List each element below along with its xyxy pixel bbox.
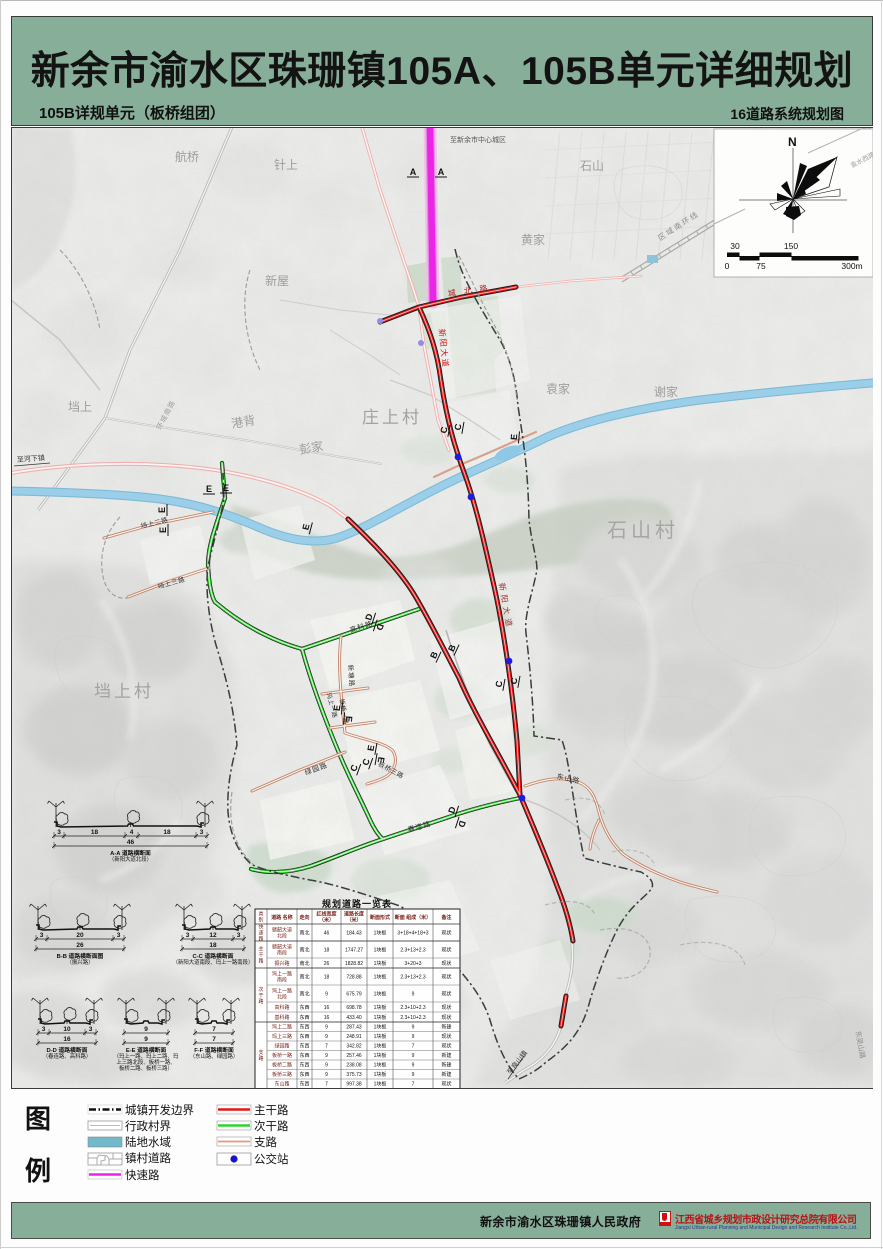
svg-text:342.82: 342.82 (346, 1044, 362, 1050)
svg-text:航桥: 航桥 (175, 149, 199, 164)
svg-text:板桥三路: 板桥三路 (272, 1071, 292, 1078)
svg-text:现状: 现状 (441, 929, 451, 936)
svg-text:镇村道路: 镇村道路 (125, 1151, 171, 1165)
svg-text:快: 快 (258, 923, 263, 930)
svg-text:石山村: 石山村 (607, 519, 679, 542)
svg-text:1块板: 1块板 (374, 1081, 387, 1088)
svg-text:玛上一路: 玛上一路 (272, 970, 292, 977)
svg-text:9: 9 (412, 1034, 415, 1040)
svg-text:1块板: 1块板 (374, 1071, 387, 1078)
svg-text:路: 路 (258, 998, 263, 1005)
svg-text:7: 7 (325, 1082, 328, 1088)
svg-text:46: 46 (324, 930, 330, 936)
svg-text:玛上一路: 玛上一路 (272, 987, 292, 994)
svg-text:赣韶大道: 赣韶大道 (272, 926, 292, 933)
svg-text:道路长度: 道路长度 (344, 911, 365, 918)
svg-text:7: 7 (412, 1044, 415, 1050)
svg-text:9: 9 (325, 991, 328, 997)
svg-text:次: 次 (258, 986, 263, 993)
svg-text:路: 路 (258, 957, 263, 964)
svg-text:1747.27: 1747.27 (345, 947, 363, 953)
svg-text:现状: 现状 (441, 1043, 451, 1050)
svg-text:东山路: 东山路 (274, 1081, 289, 1088)
svg-text:高科路: 高科路 (274, 1004, 289, 1011)
svg-text:9: 9 (325, 1025, 328, 1031)
svg-text:南北: 南北 (299, 946, 309, 953)
svg-text:（春连路、高科路）: （春连路、高科路） (43, 1052, 92, 1060)
svg-text:南北: 南北 (299, 929, 309, 936)
svg-text:东西: 东西 (299, 1014, 309, 1021)
svg-text:F-F 道路横断面: F-F 道路横断面 (194, 1046, 234, 1054)
svg-text:7: 7 (212, 1036, 216, 1043)
svg-text:16: 16 (63, 1036, 71, 1043)
svg-text:现状: 现状 (441, 1033, 451, 1040)
svg-text:公交站: 公交站 (254, 1152, 289, 1166)
svg-text:陆地水域: 陆地水域 (125, 1135, 171, 1149)
svg-text:别: 别 (258, 917, 263, 924)
svg-text:南北: 南北 (299, 973, 309, 980)
svg-text:1块板: 1块板 (374, 1024, 387, 1031)
svg-text:3: 3 (57, 829, 61, 836)
svg-text:现状: 现状 (441, 1014, 451, 1021)
svg-text:C-C 道路横断面: C-C 道路横断面 (193, 952, 234, 960)
svg-text:433.40: 433.40 (346, 1015, 362, 1021)
svg-text:南段: 南段 (277, 976, 287, 983)
svg-text:2.3+13+2.3: 2.3+13+2.3 (400, 947, 426, 953)
svg-text:1块板: 1块板 (374, 1062, 387, 1069)
svg-text:板桥二路、板桥三路）: 板桥二路、板桥三路） (119, 1064, 173, 1072)
svg-text:9: 9 (412, 1063, 415, 1069)
svg-text:谢家: 谢家 (654, 384, 678, 399)
svg-text:3: 3 (89, 1026, 93, 1033)
svg-text:东西: 东西 (299, 1071, 309, 1078)
svg-text:东西: 东西 (299, 1043, 309, 1050)
svg-text:快速路: 快速路 (125, 1168, 160, 1182)
svg-text:A: A (438, 167, 445, 177)
svg-text:玛上三路: 玛上三路 (272, 1033, 292, 1040)
svg-text:3: 3 (42, 1026, 46, 1033)
svg-text:板桥一路: 板桥一路 (272, 1052, 292, 1059)
svg-text:20: 20 (76, 932, 84, 939)
svg-text:北段: 北段 (277, 932, 287, 939)
svg-text:次干路: 次干路 (254, 1119, 289, 1133)
svg-text:新屋: 新屋 (265, 273, 289, 288)
svg-text:E: E (158, 527, 168, 533)
svg-text:18: 18 (91, 829, 99, 836)
svg-text:玛上二路: 玛上二路 (272, 1024, 292, 1031)
svg-text:675.79: 675.79 (346, 991, 362, 997)
svg-text:E: E (344, 716, 354, 723)
svg-text:道路 名称: 道路 名称 (271, 914, 292, 921)
svg-text:新建: 新建 (441, 1071, 451, 1078)
svg-text:300m: 300m (841, 261, 862, 271)
svg-text:0: 0 (725, 261, 730, 271)
svg-text:3+20+3: 3+20+3 (405, 961, 422, 967)
svg-text:E: E (509, 434, 519, 441)
svg-text:东西: 东西 (299, 1081, 309, 1088)
svg-text:行政村界: 行政村界 (125, 1119, 171, 1133)
svg-text:北段: 北段 (277, 993, 287, 1000)
svg-text:针上: 针上 (274, 157, 298, 172)
svg-text:垱上村: 垱上村 (94, 682, 154, 701)
svg-text:184.43: 184.43 (346, 930, 362, 936)
svg-text:9: 9 (325, 1034, 328, 1040)
svg-text:A: A (410, 167, 417, 177)
svg-text:698.78: 698.78 (346, 1005, 362, 1011)
svg-text:路: 路 (258, 1055, 263, 1062)
svg-text:袁家: 袁家 (546, 381, 570, 396)
svg-text:类: 类 (258, 911, 263, 918)
svg-text:E: E (206, 484, 212, 494)
svg-text:至新余市中心城区: 至新余市中心城区 (450, 135, 506, 144)
svg-text:287.43: 287.43 (346, 1025, 362, 1031)
svg-text:1块板: 1块板 (374, 929, 387, 936)
svg-text:10: 10 (63, 1026, 71, 1033)
svg-text:南段: 南段 (277, 949, 287, 956)
svg-text:9: 9 (325, 1053, 328, 1059)
svg-text:东西: 东西 (299, 1033, 309, 1040)
svg-text:支: 支 (258, 1049, 263, 1056)
svg-text:E-E 道路横断面: E-E 道路横断面 (126, 1046, 166, 1054)
svg-text:9: 9 (412, 1053, 415, 1059)
svg-text:现状: 现状 (441, 990, 451, 997)
svg-text:257.46: 257.46 (346, 1053, 362, 1059)
svg-text:3: 3 (200, 829, 204, 836)
svg-text:垱上: 垱上 (68, 400, 92, 414)
svg-text:南北: 南北 (299, 960, 309, 967)
svg-text:18: 18 (209, 942, 217, 949)
svg-text:绿园路: 绿园路 (274, 1043, 289, 1050)
svg-text:728.88: 728.88 (346, 974, 362, 980)
svg-text:城镇开发边界: 城镇开发边界 (125, 1103, 194, 1117)
svg-text:E: E (157, 507, 167, 513)
svg-text:振兴路: 振兴路 (274, 960, 289, 967)
svg-text:1块板: 1块板 (374, 1052, 387, 1059)
svg-text:75: 75 (756, 261, 766, 271)
svg-text:150: 150 (784, 241, 798, 251)
svg-text:2.3+13+2.3: 2.3+13+2.3 (400, 974, 426, 980)
svg-text:新建: 新建 (441, 1024, 451, 1031)
svg-text:4: 4 (130, 829, 134, 836)
svg-text:9: 9 (412, 1072, 415, 1078)
svg-text:上三路北段、板桥一路、: 上三路北段、板桥一路、 (116, 1058, 175, 1066)
svg-text:2.3+10+2.3: 2.3+10+2.3 (400, 1005, 426, 1011)
svg-text:18: 18 (324, 974, 330, 980)
svg-text:248.91: 248.91 (346, 1034, 362, 1040)
svg-text:E: E (332, 705, 342, 712)
svg-text:9: 9 (325, 1063, 328, 1069)
svg-text:（新阳大道南段、玛上一路南段）: （新阳大道南段、玛上一路南段） (173, 958, 254, 966)
svg-text:备注: 备注 (440, 914, 451, 921)
svg-text:7: 7 (212, 1026, 216, 1033)
svg-text:现状: 现状 (441, 960, 451, 967)
svg-text:新建: 新建 (441, 1062, 451, 1069)
svg-text:16: 16 (324, 1005, 330, 1011)
svg-text:板桥二路: 板桥二路 (272, 1062, 292, 1069)
svg-text:现状: 现状 (441, 973, 451, 980)
svg-text:3+18+4+18+3: 3+18+4+18+3 (397, 930, 428, 936)
svg-text:46: 46 (127, 839, 135, 846)
svg-text:1828.82: 1828.82 (345, 961, 363, 967)
svg-text:3: 3 (186, 932, 190, 939)
svg-text:断面 组成（米）: 断面 组成（米） (395, 914, 431, 921)
svg-text:现状: 现状 (441, 1004, 451, 1011)
svg-text:主: 主 (258, 945, 263, 952)
svg-text:（新阳大道北段）: （新阳大道北段） (109, 855, 152, 863)
svg-text:B-B 道路横断面图: B-B 道路横断面图 (57, 952, 104, 960)
svg-text:现状: 现状 (441, 946, 451, 953)
svg-text:997.38: 997.38 (346, 1082, 362, 1088)
svg-text:30: 30 (730, 241, 740, 251)
svg-text:1块板: 1块板 (374, 1043, 387, 1050)
svg-text:1块板: 1块板 (374, 1014, 387, 1021)
svg-text:主干路: 主干路 (254, 1103, 289, 1117)
svg-text:现状: 现状 (441, 1081, 451, 1088)
svg-text:石山: 石山 (580, 159, 604, 173)
svg-text:（振兴路）: （振兴路） (67, 958, 94, 966)
svg-text:26: 26 (76, 942, 84, 949)
svg-text:黄家: 黄家 (521, 232, 545, 247)
svg-text:（米）: （米） (346, 917, 361, 924)
svg-text:规划道路一览表: 规划道路一览表 (322, 898, 392, 909)
svg-text:3: 3 (117, 932, 121, 939)
svg-text:1块板: 1块板 (374, 1033, 387, 1040)
svg-text:1块板: 1块板 (374, 973, 387, 980)
svg-text:东西: 东西 (299, 1024, 309, 1031)
svg-text:走向: 走向 (298, 914, 309, 921)
svg-text:新建: 新建 (441, 1052, 451, 1059)
svg-text:9: 9 (412, 1025, 415, 1031)
svg-text:（玛上一路、玛上二路、玛: （玛上一路、玛上二路、玛 (114, 1052, 179, 1060)
svg-text:A-A 道路横断面: A-A 道路横断面 (110, 849, 151, 857)
svg-text:26: 26 (324, 961, 330, 967)
svg-text:赣韶大道: 赣韶大道 (272, 943, 292, 950)
svg-text:断面形式: 断面形式 (370, 914, 390, 921)
svg-text:D-D 道路横断面: D-D 道路横断面 (47, 1046, 88, 1054)
svg-text:东西: 东西 (299, 1062, 309, 1069)
svg-text:238.08: 238.08 (346, 1063, 362, 1069)
svg-text:9: 9 (144, 1026, 148, 1033)
svg-text:375.73: 375.73 (346, 1072, 362, 1078)
svg-text:9: 9 (412, 991, 415, 997)
svg-text:1块板: 1块板 (374, 1004, 387, 1011)
svg-text:1块板: 1块板 (374, 990, 387, 997)
svg-text:N: N (788, 135, 797, 149)
svg-text:基科路: 基科路 (274, 1014, 289, 1021)
svg-text:7: 7 (325, 1044, 328, 1050)
svg-text:1块板: 1块板 (374, 946, 387, 953)
svg-text:9: 9 (144, 1036, 148, 1043)
svg-text:（东山路、绿园路）: （东山路、绿园路） (190, 1052, 239, 1060)
svg-text:3: 3 (40, 932, 44, 939)
svg-text:18: 18 (163, 829, 171, 836)
svg-text:庄上村: 庄上村 (362, 408, 422, 427)
svg-text:2.3+10+2.3: 2.3+10+2.3 (400, 1015, 426, 1021)
svg-text:16: 16 (324, 1015, 330, 1021)
svg-text:支路: 支路 (254, 1135, 277, 1149)
svg-text:红线宽度: 红线宽度 (316, 911, 337, 918)
svg-text:1块板: 1块板 (374, 960, 387, 967)
svg-text:E: E (223, 483, 229, 493)
svg-text:7: 7 (412, 1082, 415, 1088)
svg-text:3: 3 (237, 932, 241, 939)
svg-text:东西: 东西 (299, 1004, 309, 1011)
svg-text:南北: 南北 (299, 990, 309, 997)
svg-text:东西: 东西 (299, 1052, 309, 1059)
svg-text:12: 12 (209, 932, 217, 939)
svg-text:（米）: （米） (319, 917, 334, 924)
svg-text:18: 18 (324, 947, 330, 953)
svg-text:9: 9 (325, 1072, 328, 1078)
